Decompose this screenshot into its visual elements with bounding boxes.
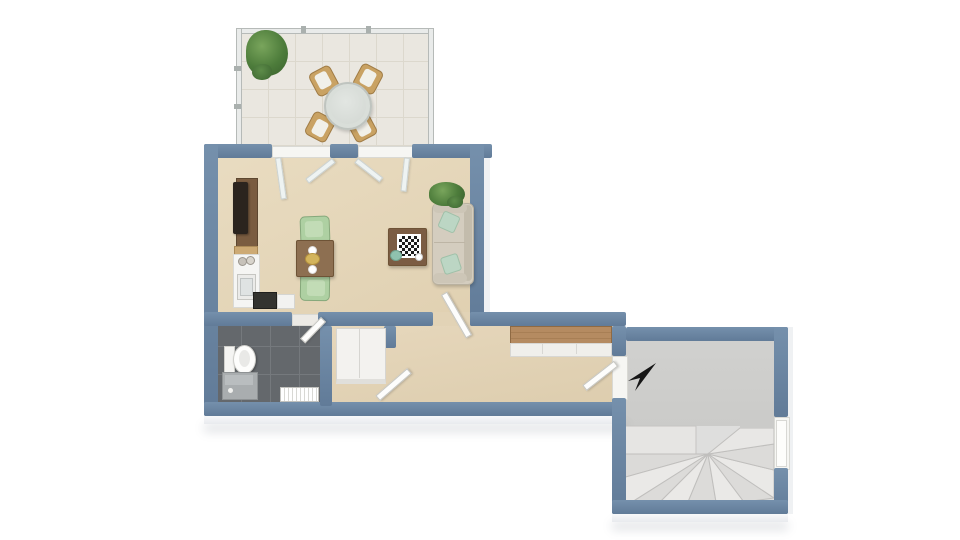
sofa-backrest	[464, 205, 472, 281]
living-room-plant-icon	[447, 196, 463, 208]
wall-front-face	[204, 416, 626, 424]
terrace-round-table	[324, 82, 372, 130]
drawer-seam	[576, 344, 577, 354]
terrace-plant-icon	[252, 64, 272, 80]
wall	[774, 327, 788, 417]
wall-front-face	[612, 514, 788, 522]
drawer-seam	[542, 344, 543, 354]
tv	[233, 182, 248, 234]
wall	[470, 312, 626, 326]
wall	[612, 326, 626, 356]
stove	[253, 292, 277, 309]
floor-plan-render	[0, 0, 960, 540]
railing-post	[234, 66, 241, 71]
wall	[330, 144, 358, 158]
toilet-bowl	[239, 350, 250, 367]
wall	[204, 402, 626, 416]
wall	[612, 398, 626, 514]
railing-post	[366, 26, 371, 33]
cup	[415, 253, 423, 261]
stair-direction-arrow-icon	[628, 362, 658, 392]
sideboard-front	[510, 343, 612, 357]
sofa-armrest	[433, 273, 467, 283]
wall	[204, 144, 218, 416]
wall-outer-face	[484, 144, 490, 326]
wall	[320, 326, 332, 406]
dining-chair	[300, 273, 330, 302]
vanity-top	[225, 375, 253, 385]
terrace-railing-right	[428, 28, 434, 150]
plate	[308, 265, 317, 274]
kitchen-jar	[246, 256, 255, 265]
railing-post	[301, 26, 306, 33]
wall	[612, 500, 788, 514]
drain	[228, 388, 233, 393]
closet-door-seam	[359, 328, 360, 378]
wall	[204, 312, 292, 326]
entrance-door	[776, 420, 787, 467]
teapot	[390, 250, 402, 261]
winder-staircase	[622, 410, 774, 502]
wall	[318, 312, 433, 326]
dishwasher	[277, 294, 295, 309]
railing-post	[234, 104, 241, 109]
radiator	[280, 387, 319, 402]
sofa-seam	[434, 242, 465, 243]
serving-dish	[305, 253, 320, 265]
sink-basin	[240, 278, 253, 296]
terrace-door-sill	[272, 146, 332, 158]
wall	[626, 327, 788, 341]
terrace-railing-left	[236, 28, 242, 150]
closet	[336, 328, 386, 384]
terrace-door-sill	[358, 146, 414, 158]
